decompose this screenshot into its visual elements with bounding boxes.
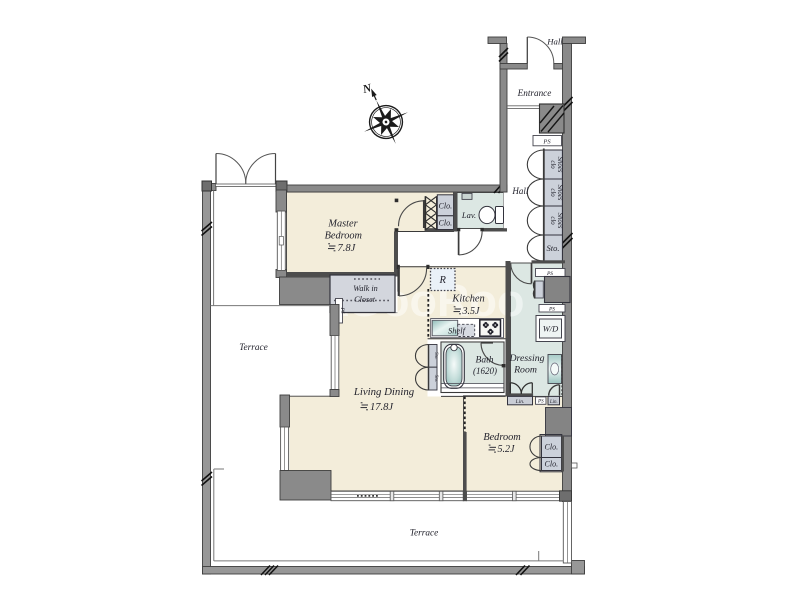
svg-text:clo: clo xyxy=(549,216,556,225)
svg-text:Clo.: Clo. xyxy=(439,218,453,227)
svg-text:7.8J: 7.8J xyxy=(338,243,357,254)
svg-text:Kitchen: Kitchen xyxy=(451,293,484,304)
svg-text:PS: PS xyxy=(548,307,555,313)
svg-text:Terrace: Terrace xyxy=(239,343,268,353)
svg-text:Sto.: Sto. xyxy=(433,375,438,383)
svg-text:Clo.: Clo. xyxy=(545,443,559,452)
svg-text:Shelf: Shelf xyxy=(448,326,467,336)
svg-text:PS: PS xyxy=(339,306,345,313)
svg-text:Sto.: Sto. xyxy=(433,352,438,360)
svg-text:3.5J: 3.5J xyxy=(462,306,481,317)
svg-text:W/D: W/D xyxy=(543,324,559,334)
svg-text:PS: PS xyxy=(537,400,544,405)
svg-text:Clo.: Clo. xyxy=(439,201,453,210)
svg-text:Lin.: Lin. xyxy=(549,400,558,405)
svg-text:Entrance: Entrance xyxy=(517,88,552,98)
svg-text:17.8J: 17.8J xyxy=(370,402,394,413)
svg-text:Lav.: Lav. xyxy=(461,210,476,220)
svg-text:Room: Room xyxy=(513,365,537,376)
svg-text:clo: clo xyxy=(549,188,556,197)
svg-text:Walk in: Walk in xyxy=(353,284,378,293)
svg-text:PS: PS xyxy=(542,138,551,145)
svg-text:Bedroom: Bedroom xyxy=(483,432,520,443)
svg-text:Master: Master xyxy=(327,219,358,230)
svg-text:PS: PS xyxy=(546,271,553,277)
svg-text:Living Dining: Living Dining xyxy=(353,386,415,398)
svg-text:Terrace: Terrace xyxy=(410,528,439,538)
svg-text:Lin.: Lin. xyxy=(515,399,525,405)
svg-text:Hall: Hall xyxy=(511,186,529,196)
svg-text:Bedroom: Bedroom xyxy=(325,230,362,241)
svg-text:Shoes: Shoes xyxy=(556,157,563,173)
svg-text:clo: clo xyxy=(549,160,556,169)
svg-text:Hall: Hall xyxy=(546,37,563,47)
svg-text:Shoes: Shoes xyxy=(556,185,563,201)
svg-text:(1620): (1620) xyxy=(473,366,497,376)
svg-text:5.2J: 5.2J xyxy=(498,444,516,455)
svg-text:Clo.: Clo. xyxy=(545,460,559,469)
svg-text:Bath: Bath xyxy=(476,356,494,366)
svg-text:Dressing: Dressing xyxy=(508,353,544,364)
svg-text:R: R xyxy=(438,275,446,286)
svg-text:Closet: Closet xyxy=(354,295,376,304)
svg-text:Sto.: Sto. xyxy=(547,243,560,253)
svg-text:Shoes: Shoes xyxy=(556,213,563,229)
